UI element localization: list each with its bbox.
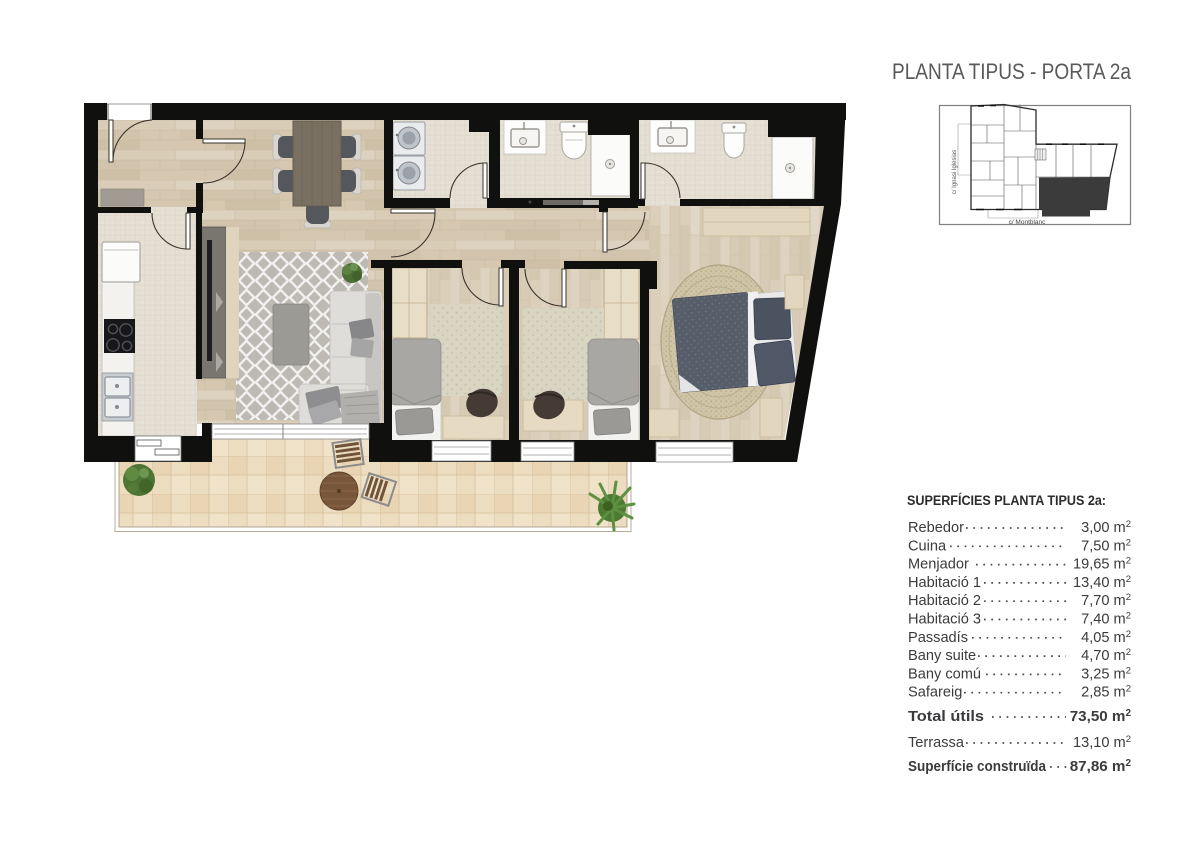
- svg-text:Rebedor: Rebedor: [908, 520, 964, 536]
- svg-text:Total útils: Total útils: [908, 708, 984, 725]
- svg-text:4,05 m2: 4,05 m2: [1081, 629, 1131, 646]
- svg-text:73,50 m2: 73,50 m2: [1070, 708, 1132, 725]
- svg-text:SUPERFÍCIES PLANTA TIPUS 2a:: SUPERFÍCIES PLANTA TIPUS 2a:: [907, 492, 1106, 509]
- svg-text:Bany comú: Bany comú: [908, 666, 981, 682]
- svg-text:Habitació 3: Habitació 3: [908, 612, 981, 628]
- svg-text:19,65 m2: 19,65 m2: [1073, 556, 1131, 573]
- svg-text:2,85 m2: 2,85 m2: [1081, 684, 1131, 701]
- svg-text:c/ Montblanc: c/ Montblanc: [1009, 219, 1047, 226]
- svg-text:7,70 m2: 7,70 m2: [1081, 592, 1131, 609]
- svg-text:Passadís: Passadís: [908, 630, 968, 646]
- svg-text:PLANTA TIPUS - PORTA 2a: PLANTA TIPUS - PORTA 2a: [892, 59, 1131, 84]
- svg-text:Habitació 2: Habitació 2: [908, 593, 981, 609]
- svg-text:Cuina: Cuina: [908, 538, 947, 554]
- svg-text:Menjador: Menjador: [908, 557, 969, 573]
- svg-text:3,00 m2: 3,00 m2: [1081, 519, 1131, 536]
- svg-text:Bany suite: Bany suite: [908, 648, 976, 664]
- svg-text:Safareig: Safareig: [908, 685, 962, 701]
- svg-text:Terrassa: Terrassa: [908, 735, 965, 751]
- svg-text:c/ Ignasi Iglesias: c/ Ignasi Iglesias: [952, 150, 958, 194]
- svg-text:13,10 m2: 13,10 m2: [1073, 734, 1131, 751]
- svg-text:4,70 m2: 4,70 m2: [1081, 647, 1131, 664]
- svg-text:7,50 m2: 7,50 m2: [1081, 537, 1131, 554]
- svg-text:Superfície construïda: Superfície construïda: [908, 758, 1046, 775]
- svg-text:Habitació 1: Habitació 1: [908, 575, 981, 591]
- svg-text:87,86 m2: 87,86 m2: [1070, 758, 1132, 775]
- svg-text:7,40 m2: 7,40 m2: [1081, 611, 1131, 628]
- svg-text:3,25 m2: 3,25 m2: [1081, 665, 1131, 682]
- svg-text:13,40 m2: 13,40 m2: [1073, 574, 1131, 591]
